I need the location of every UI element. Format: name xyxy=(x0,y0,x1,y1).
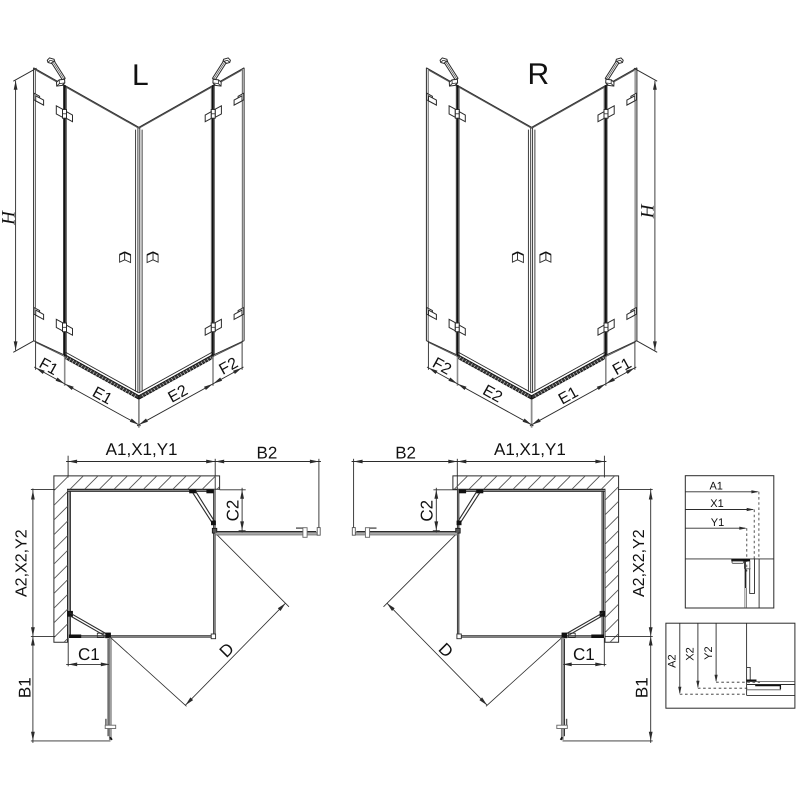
svg-text:A2,X2,Y2: A2,X2,Y2 xyxy=(14,529,31,597)
svg-text:X2: X2 xyxy=(685,647,697,660)
svg-text:C2: C2 xyxy=(418,500,437,522)
svg-text:H: H xyxy=(0,210,20,226)
svg-text:H: H xyxy=(638,203,659,219)
svg-text:A2,X2,Y2: A2,X2,Y2 xyxy=(631,529,648,597)
svg-text:Y2: Y2 xyxy=(703,646,715,659)
svg-text:R: R xyxy=(528,58,550,91)
svg-text:Y1: Y1 xyxy=(711,517,724,529)
svg-text:X1: X1 xyxy=(710,498,723,510)
svg-text:B2: B2 xyxy=(257,443,278,462)
svg-text:C1: C1 xyxy=(78,645,100,664)
svg-text:A1,X1,Y1: A1,X1,Y1 xyxy=(106,440,178,459)
svg-text:A2: A2 xyxy=(667,654,679,667)
svg-text:B1: B1 xyxy=(16,677,35,698)
svg-text:A1: A1 xyxy=(709,480,722,492)
svg-text:L: L xyxy=(132,59,149,92)
svg-text:B2: B2 xyxy=(395,443,416,462)
svg-text:A1,X1,Y1: A1,X1,Y1 xyxy=(494,440,566,459)
svg-text:C2: C2 xyxy=(223,500,242,522)
svg-text:B1: B1 xyxy=(632,677,651,698)
svg-text:C1: C1 xyxy=(573,645,595,664)
